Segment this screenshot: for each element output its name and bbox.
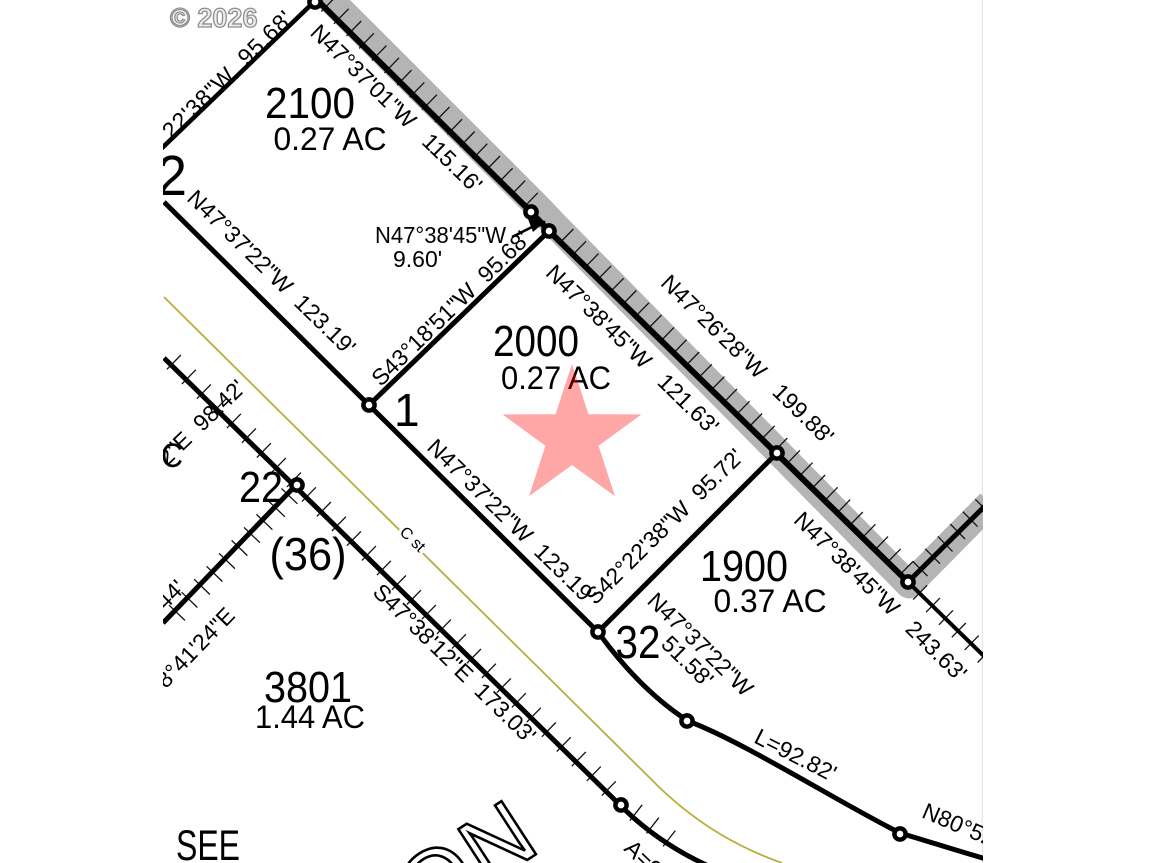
svg-text:N47°38'45"W: N47°38'45"W <box>375 222 506 248</box>
svg-text:C st: C st <box>396 524 429 556</box>
svg-text:32: 32 <box>616 616 661 668</box>
svg-text:© 2026: © 2026 <box>170 3 257 33</box>
svg-text:22: 22 <box>239 463 283 512</box>
svg-text:0.27 AC: 0.27 AC <box>274 121 387 157</box>
svg-text:N47°37'22"W 123.19': N47°37'22"W 123.19' <box>182 185 361 360</box>
svg-text:0.37 AC: 0.37 AC <box>714 583 827 619</box>
svg-text:2"E 98.42': 2"E 98.42' <box>152 374 250 470</box>
svg-text:0.27 AC: 0.27 AC <box>501 360 611 396</box>
svg-text:8°41'24"E: 8°41'24"E <box>151 602 240 693</box>
svg-text:S47°38'12"E 173.03': S47°38'12"E 173.03' <box>368 578 541 748</box>
svg-text:SEE: SEE <box>176 822 240 863</box>
svg-text:(36): (36) <box>270 528 347 580</box>
svg-text:2: 2 <box>157 144 187 208</box>
svg-text:2000: 2000 <box>493 317 579 366</box>
svg-text:44': 44' <box>151 575 191 615</box>
svg-text:ON: ON <box>379 780 555 863</box>
svg-text:9.60': 9.60' <box>393 246 442 272</box>
svg-text:1: 1 <box>394 384 420 436</box>
svg-text:1.44 AC: 1.44 AC <box>255 699 365 735</box>
